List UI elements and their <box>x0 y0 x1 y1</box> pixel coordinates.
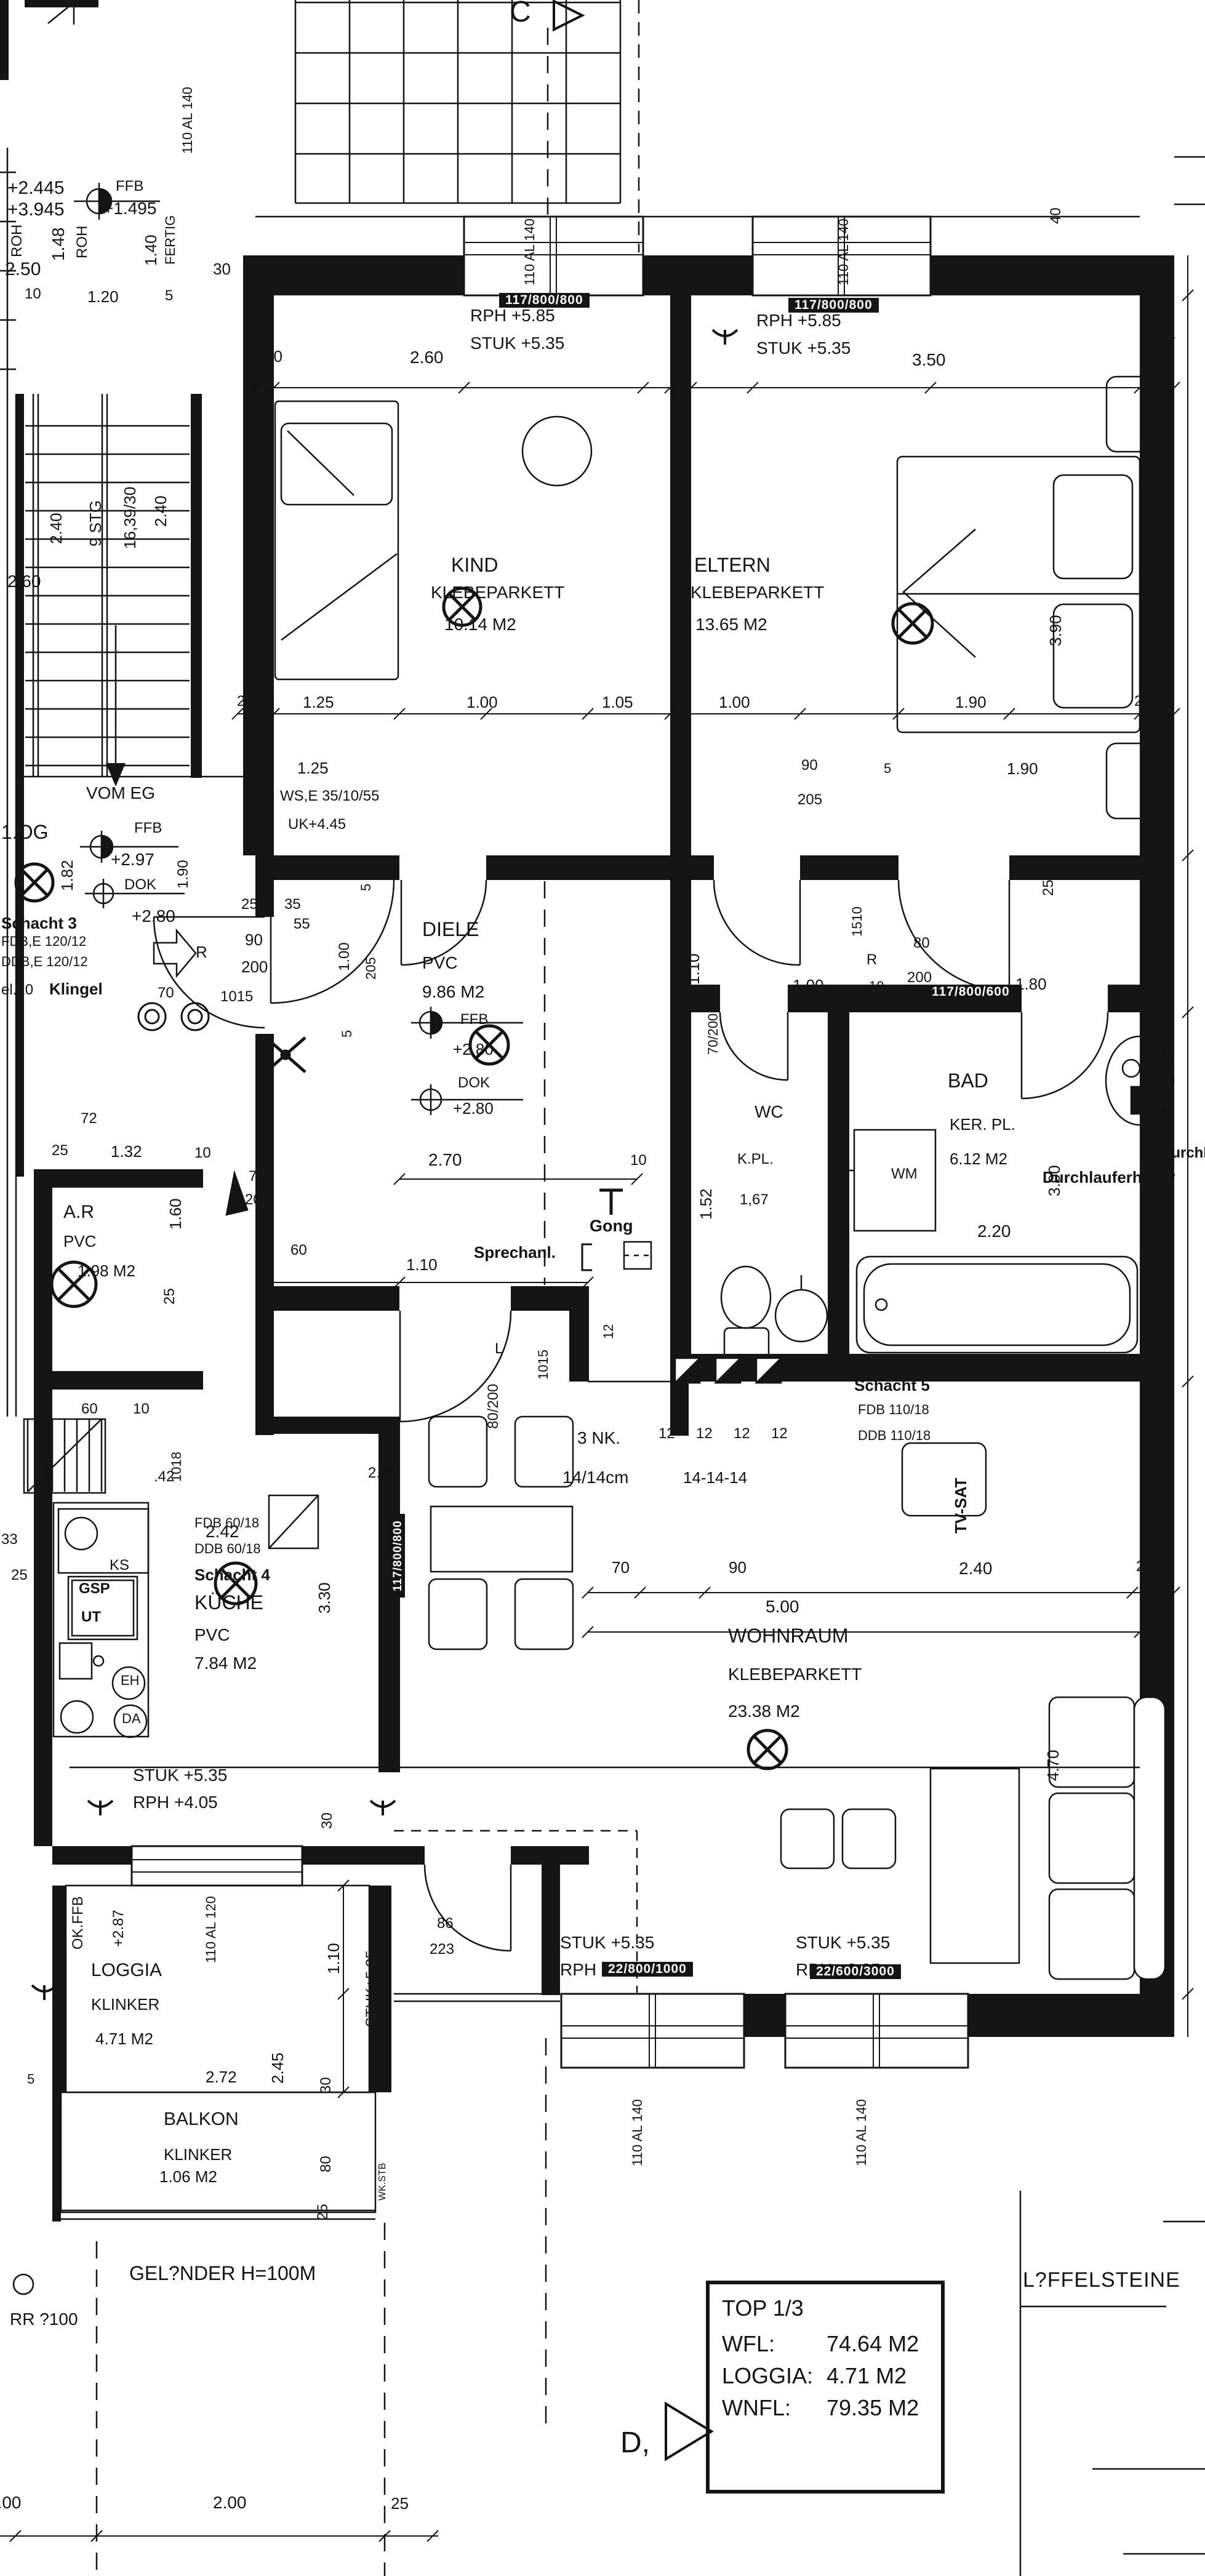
plan-label: 1015 <box>220 990 253 1005</box>
plan-label: 1.06 M2 <box>159 2169 217 2185</box>
plan-label: DOK <box>458 1076 490 1091</box>
doorbell-icons <box>138 1003 209 1030</box>
plan-label: BALKON <box>164 2110 239 2129</box>
plan-label: 5 <box>884 762 891 776</box>
plan-label: KIND <box>451 555 498 575</box>
plan-label: Schacht 5 <box>854 1377 930 1394</box>
plan-label: 200 <box>907 970 932 986</box>
plan-label: 30 <box>1049 273 1064 289</box>
plan-label: WS,E 35/10/55 <box>280 789 379 804</box>
plan-label: ELTERN <box>694 555 771 575</box>
plan-label: 200 <box>241 959 268 975</box>
plan-label: KS <box>110 1558 129 1574</box>
plan-label: 33 <box>1 1532 18 1548</box>
plan-label: +2.80 <box>453 1100 494 1117</box>
plan-label: 25 <box>241 897 258 913</box>
section-d-triangle <box>666 2404 711 2459</box>
plan-label: 1510 <box>851 906 865 937</box>
plan-label: 60 <box>81 1402 98 1417</box>
plan-label: STUK +5.35 <box>560 1934 654 1951</box>
info-row-loggia: LOGGIA: 4.71 M2 <box>722 2363 929 2389</box>
plan-label: 1.OG <box>1 822 48 842</box>
kitchen-sink-square <box>60 1643 103 1679</box>
plan-label: 55 <box>294 917 310 932</box>
plan-label: WC <box>755 1103 783 1121</box>
plan-label: FFB <box>116 179 143 194</box>
plan-label: 110 AL 140 <box>523 218 537 286</box>
plan-label: 5 <box>359 884 374 891</box>
dining-table <box>431 1506 572 1572</box>
fridge-ks <box>58 1509 148 1573</box>
plan-label: KLINKER <box>91 1996 159 2013</box>
window-tag-label: 117/800/800 <box>391 1514 405 1598</box>
window-tag-label: 117/800/800 <box>788 298 879 313</box>
plan-label: 25 <box>1141 359 1159 376</box>
kitchen-sink-round <box>61 1701 93 1733</box>
plan-label: RPH +5.85 <box>470 306 555 324</box>
plan-label: 10 <box>869 980 884 994</box>
plan-label: 30 <box>265 348 282 365</box>
plan-label: 5.00 <box>766 1598 799 1615</box>
plan-label: FDB,E 120/12 <box>1 935 86 949</box>
plan-label: DA <box>122 1712 141 1726</box>
plan-label: 1015 <box>537 1350 551 1380</box>
window-tag-label: 117/800/800 <box>499 293 590 308</box>
coffee-table <box>931 1769 1019 1963</box>
plan-label: 1.00 <box>719 694 750 711</box>
plan-label: 90 <box>245 932 263 948</box>
plan-label: KER. PL. <box>950 1116 1015 1133</box>
plan-label: DIELE <box>422 919 479 940</box>
sprechanlage-icon <box>582 1244 592 1270</box>
plan-label: +3.945 <box>7 200 65 219</box>
plan-label: 30 <box>319 2077 334 2094</box>
window-tag-label: 117/800/600 <box>926 985 1016 999</box>
plan-label: 3.50 <box>912 351 946 369</box>
plan-label: 2.45 <box>270 2052 286 2084</box>
plan-label: ROH <box>10 225 25 257</box>
plan-label: 2.70 <box>428 1151 462 1169</box>
plan-label: 1.80 <box>1015 976 1047 993</box>
plan-label: 5 <box>27 2073 34 2087</box>
plan-label: FFB <box>460 1012 488 1028</box>
table-kind <box>522 417 591 486</box>
plan-label: 1.52 <box>698 1188 715 1220</box>
plan-label: el.20 <box>1 983 33 998</box>
plan-label: 110 AL 140 <box>837 218 851 286</box>
plan-label: FDB 60/18 <box>194 1516 259 1530</box>
info-key: WNFL: <box>722 2395 827 2421</box>
plan-label: 5 <box>340 1030 354 1038</box>
plan-label: 25 <box>1136 1559 1153 1575</box>
plan-label: 70 <box>612 1559 630 1576</box>
floor-plan-linework <box>0 0 1205 2576</box>
plan-label: 70/200 <box>707 1014 721 1055</box>
plan-label: KLEBEPARKETT <box>431 583 564 601</box>
plan-label: 72 <box>81 1111 97 1127</box>
couch <box>1049 1697 1165 1979</box>
window-wohnraum-left <box>561 1994 744 2068</box>
plan-label: DDB,E 120/12 <box>1 955 88 969</box>
plan-label: 2.00 <box>213 2494 247 2511</box>
plan-label: 2.20 <box>977 1222 1011 1240</box>
plan-label: 1.10 <box>406 1257 438 1273</box>
plan-label: KLEBEPARKETT <box>728 1665 862 1683</box>
plan-label: 25 <box>11 1568 28 1583</box>
plan-label: PVC <box>422 954 458 972</box>
info-key: WFL: <box>722 2331 827 2357</box>
plan-label: 10 <box>133 1402 150 1417</box>
plan-label: 12 <box>602 1324 616 1339</box>
balcony-drain-circle <box>14 2274 33 2294</box>
plan-label: 70 <box>249 1169 265 1185</box>
toilet <box>721 1266 771 1359</box>
section-c-triangle <box>554 1 582 30</box>
plan-label: 3 NK. <box>577 1429 620 1447</box>
note-loeffelsteine: L?FFELSTEINE <box>1023 2268 1180 2292</box>
window-tag-label: 22/800/1000 <box>602 1962 693 1977</box>
plan-label: +2.80 <box>132 907 175 925</box>
plan-label: 12 <box>696 1426 713 1442</box>
plan-label: 110 AL 140 <box>631 2099 645 2166</box>
plan-label: STUK +5.35 <box>756 339 851 357</box>
plan-label: STUK +5.35 <box>133 1766 227 1784</box>
plan-label: Klingel <box>49 981 103 998</box>
window-loggia <box>132 1846 302 1886</box>
window-wohnraum-right <box>785 1994 968 2068</box>
plan-label: 223 <box>430 1942 454 1958</box>
plan-label: 10 <box>25 287 41 302</box>
plan-label: 1.98 M2 <box>78 1263 135 1279</box>
plan-label: 205 <box>798 793 822 808</box>
plan-label: 25 <box>391 2495 409 2512</box>
plan-label: BAD <box>948 1071 988 1091</box>
plan-label: 12 <box>659 1426 675 1442</box>
plan-label: 80 <box>319 2156 334 2172</box>
plan-label: RPH +5.85 <box>756 311 841 329</box>
plan-label: 70 <box>158 986 174 1001</box>
info-value: 74.64 M2 <box>827 2331 919 2357</box>
plan-label: +2.445 <box>7 178 65 198</box>
plan-label: R <box>196 944 207 961</box>
plan-label: 12 <box>734 1426 750 1442</box>
plan-label: 1.10 <box>686 953 702 985</box>
plan-label: 25 <box>237 694 254 710</box>
top-info-box: TOP 1/3 WFL: 74.64 M2 LOGGIA: 4.71 M2 WN… <box>706 2281 945 2494</box>
dining-chairs <box>429 1417 573 1649</box>
plan-label: 205 <box>364 957 378 980</box>
plan-label: +1.495 <box>103 199 156 217</box>
info-row-wfl: WFL: 74.64 M2 <box>722 2331 929 2357</box>
floor-plan-canvas: +2.445+3.9452.50ROH1.48FFB+1.495ROH1.40F… <box>0 0 1205 2576</box>
schacht4-shaft <box>269 1495 318 1548</box>
plan-label: 1.25 <box>297 760 329 777</box>
plan-label: 110 AL 140 <box>855 2099 869 2166</box>
plan-label: FFB <box>134 821 162 836</box>
plan-label: KÜCHE <box>194 1593 263 1613</box>
plan-label: Schacht 4 <box>194 1567 270 1583</box>
bed-kind <box>275 401 398 679</box>
plan-label: 2.20 <box>368 1466 397 1481</box>
door-eltern <box>714 880 800 965</box>
plan-label: FERTIG <box>164 215 178 265</box>
plan-label: 1.40 <box>143 234 159 266</box>
plan-label: DOK <box>124 878 156 893</box>
plan-label: 25 <box>1041 879 1057 896</box>
plan-label: 2.50 <box>5 260 41 279</box>
plan-label: 80/200 <box>486 1384 502 1429</box>
plan-label: 90 <box>729 1559 747 1576</box>
plan-label: 1.00 <box>337 942 353 971</box>
plan-label: 110 AL 140 <box>181 87 195 154</box>
plan-label: 9 STG <box>87 500 104 546</box>
plan-label: L <box>495 1342 503 1357</box>
plan-label: OK.FFB <box>71 1896 86 1950</box>
plan-label: 25 <box>316 2204 331 2220</box>
plan-label: 86 <box>437 1916 454 1932</box>
plan-label: 1.10 <box>326 1943 342 1974</box>
plan-label: 7.84 M2 <box>194 1654 257 1672</box>
plan-label: 30 <box>320 1812 335 1829</box>
vent-boxes <box>675 1358 781 1383</box>
plan-label: 1.90 <box>1007 761 1038 777</box>
door-wc <box>720 1012 788 1080</box>
plan-label: Durchlauferhitzer <box>1043 1169 1175 1186</box>
plan-label: WOHNRAUM <box>728 1626 849 1646</box>
plan-label: 90 <box>801 758 818 774</box>
section-marker-d: D, <box>620 2426 650 2460</box>
wc-sink <box>775 1275 827 1342</box>
plan-label: 2.40 <box>959 1559 993 1577</box>
plan-label: +2.87 <box>111 1910 127 1947</box>
plan-label: Sprechanl. <box>474 1244 556 1261</box>
plan-label: A.R <box>63 1202 94 1222</box>
info-row-wnfl: WNFL: 79.35 M2 <box>722 2395 929 2421</box>
plan-label: K.PL. <box>737 1152 774 1167</box>
plan-label: 6.12 M2 <box>950 1151 1007 1167</box>
plan-label: 35 <box>284 897 301 913</box>
plan-label: ROH <box>75 226 90 258</box>
plan-label: 200 <box>245 1193 270 1208</box>
plan-label: 3.90 <box>1047 615 1064 646</box>
level-marker-icons <box>74 183 523 1115</box>
plan-label: 16,39/30 <box>122 487 138 549</box>
plan-label: 1.00 <box>0 2494 22 2511</box>
plan-label: 1.00 <box>793 977 824 994</box>
plan-label: 1.90 <box>176 860 191 889</box>
furniture <box>54 377 1174 1979</box>
plan-label: 14/14cm <box>562 1468 628 1486</box>
plan-label: 1.05 <box>602 694 633 711</box>
plan-label: 10 <box>630 1153 647 1169</box>
plan-label: FDB 110/18 <box>858 1403 929 1417</box>
plan-label: 4.71 M2 <box>95 2031 153 2047</box>
plan-label: 1.32 <box>111 1143 142 1160</box>
plan-label: WK.STB <box>378 2163 388 2201</box>
plan-label: 1.82 <box>59 860 76 891</box>
plan-label: PVC <box>194 1626 230 1644</box>
plan-label: 14-14-14 <box>683 1470 747 1486</box>
plan-label: 1,67 <box>740 1193 769 1208</box>
plan-label: 80 <box>913 936 930 951</box>
bed-eltern <box>897 457 1140 732</box>
plan-label: 2.72 <box>206 2069 237 2086</box>
plan-label: 1.20 <box>87 289 119 305</box>
plan-label: RPH +4.05 <box>133 1793 218 1811</box>
plan-label: 5 <box>165 289 173 304</box>
plan-label: EH <box>121 1674 140 1688</box>
plan-label: 10 <box>194 1146 211 1161</box>
plan-label: Schacht 3 <box>1 915 77 932</box>
info-value: 4.71 M2 <box>827 2363 907 2389</box>
plan-label: 3.30 <box>316 1582 333 1614</box>
plan-label: 1.00 <box>466 694 498 711</box>
plan-label: 1.90 <box>955 694 987 711</box>
plan-label: 4.70 <box>1045 1750 1062 1781</box>
plan-label: Durchl. <box>1161 1146 1205 1161</box>
plan-label: 1.48 <box>49 228 67 262</box>
plan-label: STUK +5.35 <box>470 334 564 352</box>
plan-label: R <box>867 953 877 968</box>
plan-label: STUK +5.35 <box>796 1934 890 1951</box>
plan-label: 30 <box>213 261 231 278</box>
plan-label: WM <box>891 1167 918 1182</box>
info-value: 79.35 M2 <box>827 2395 919 2421</box>
plan-label: Gong <box>590 1217 633 1234</box>
plan-label: UT <box>81 1610 101 1625</box>
plan-label: 25 <box>1134 694 1151 710</box>
plan-label: 110 AL 120 <box>204 1896 218 1963</box>
dimension-lines <box>0 255 1193 2542</box>
plan-label: 10.14 M2 <box>444 615 516 633</box>
plan-label: UK+4.45 <box>288 817 346 833</box>
plan-label: 60 <box>290 1243 307 1258</box>
plan-label: 2.60 <box>410 348 444 366</box>
window-tag-label: 22/600/3000 <box>810 1964 901 1979</box>
plan-label: 10 <box>670 348 686 364</box>
door-ar-wedge <box>226 1173 247 1215</box>
plan-label: DDB 110/18 <box>858 1429 931 1443</box>
door-loggia <box>425 1865 511 1951</box>
top-info-title: TOP 1/3 <box>722 2295 929 2321</box>
plan-label: 1.60 <box>167 1198 184 1230</box>
plan-label: STUK+5.35 <box>364 1950 380 2027</box>
plan-label: GSP <box>79 1582 110 1597</box>
plan-label: 1.25 <box>303 694 334 711</box>
plan-label: 1018 <box>170 1452 184 1482</box>
window-kind <box>464 217 643 295</box>
doors <box>154 880 1108 1951</box>
plan-label: 25 <box>52 1143 68 1159</box>
plan-label: PVC <box>63 1233 96 1250</box>
door-bad <box>1022 1012 1108 1098</box>
plan-label: 40 <box>1049 207 1064 224</box>
plan-label: 23.38 M2 <box>728 1702 800 1720</box>
plan-label: +2.97 <box>111 850 154 868</box>
plan-label: DDB 60/18 <box>194 1542 261 1556</box>
plan-label: KLINKER <box>164 2146 232 2163</box>
walls <box>0 0 1174 2222</box>
info-key: LOGGIA: <box>722 2363 827 2389</box>
armchairs <box>781 1809 895 1868</box>
plan-label: VOM EG <box>86 784 155 802</box>
outlines <box>61 217 1205 2576</box>
bathtub <box>857 1257 1137 1353</box>
plan-label: 2.60 <box>7 572 41 590</box>
plan-label: TV-SAT <box>953 1478 969 1534</box>
plan-label: KLEBEPARKETT <box>691 583 824 601</box>
plan-label: 2.40 <box>48 513 65 544</box>
section-marker-c: C <box>510 0 531 29</box>
plan-label: 9.86 M2 <box>422 983 484 1001</box>
plan-label: RR ?100 <box>10 2310 78 2328</box>
plan-label: 12 <box>771 1426 788 1442</box>
plan-label: 2.40 <box>153 495 169 527</box>
plan-label: +2.80 <box>453 1041 494 1058</box>
plan-label: GEL?NDER H=100M <box>129 2263 316 2284</box>
tv-sat-niche <box>902 1443 986 1516</box>
plan-label: 13.65 M2 <box>695 615 767 633</box>
plan-label: LOGGIA <box>91 1961 162 1980</box>
plan-label: 25 <box>162 1288 178 1305</box>
